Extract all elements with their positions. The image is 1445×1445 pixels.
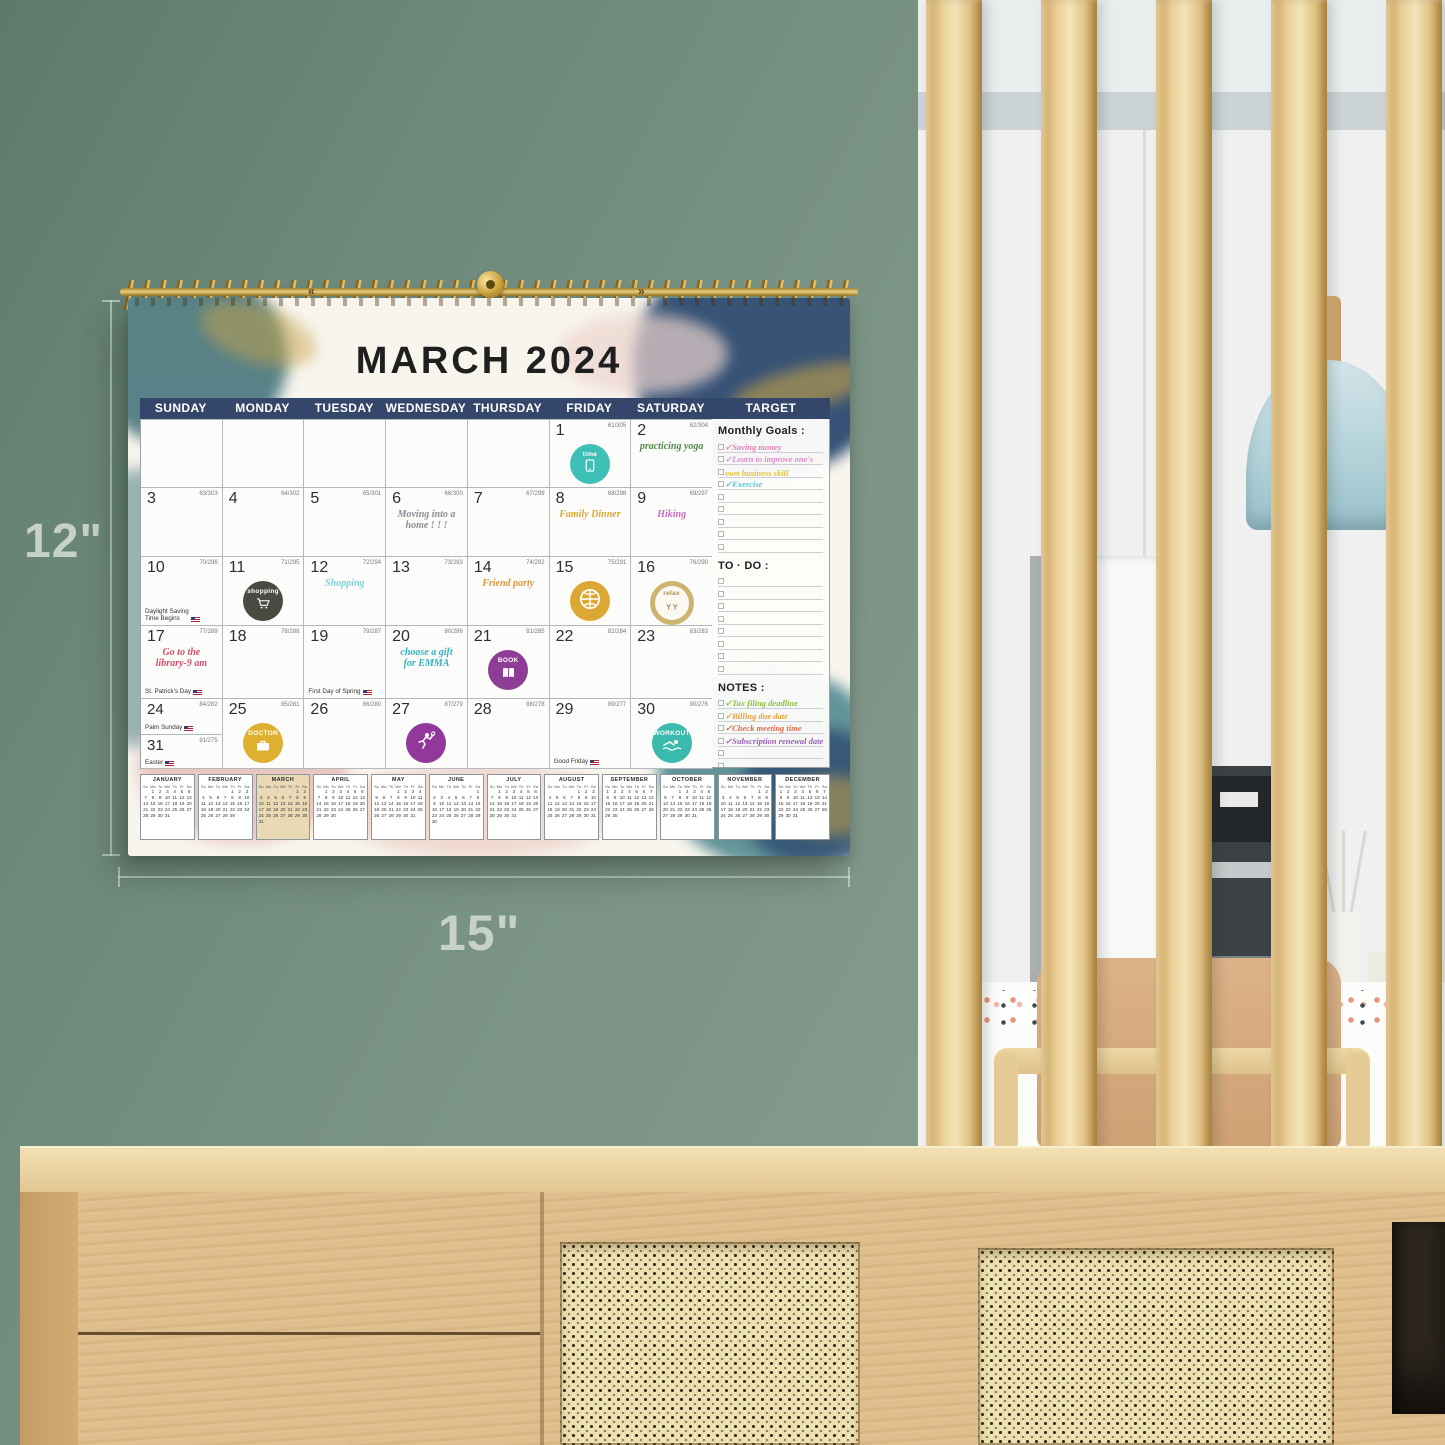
calendar-day-cell: 464/302: [223, 488, 305, 557]
calendar-day-cell: 2787/279: [386, 699, 468, 769]
mini-days-grid: 1234567891011121314151617181920212223242…: [489, 789, 540, 819]
day-number: 29: [556, 701, 574, 719]
mini-day: 26: [633, 807, 640, 813]
mini-days-grid: 1234567891011121314151617181920212223242…: [546, 789, 597, 819]
mini-day: 30: [684, 813, 691, 819]
checklist-line: own business skill: [718, 465, 823, 478]
mini-day: 25: [727, 813, 734, 819]
mini-day: 29: [294, 813, 301, 819]
us-flag-icon: [193, 690, 202, 696]
mini-days-grid: 1234567891011121314151617181920212223242…: [315, 789, 366, 819]
mini-day: 27: [359, 807, 366, 813]
calendar-day-cell: [468, 420, 550, 488]
day-number: 14: [474, 559, 492, 577]
calendar-day-cell: 2181/285BOOK: [468, 626, 550, 699]
day-of-year-code: 67/299: [526, 491, 544, 497]
checklist-line: [718, 575, 823, 588]
calendar-page: MARCH 2024 SUNDAYMONDAYTUESDAYWEDNESDAYT…: [128, 298, 850, 856]
notes-label: NOTES :: [718, 682, 823, 694]
wood-slat: [1271, 0, 1327, 1152]
swimmer-icon: [662, 738, 682, 756]
day-number: 9: [637, 490, 646, 508]
mini-month-name: APRIL: [315, 776, 366, 784]
monthly-goals-label: Monthly Goals :: [718, 425, 823, 437]
mini-day: 24: [720, 813, 727, 819]
handwritten-note: choose a gift for EMMA: [388, 647, 465, 669]
day-number: 3: [147, 490, 156, 508]
calendar-day-cell: 666/300Moving into a home ! ! !: [386, 488, 468, 557]
mini-day: 29: [496, 813, 503, 819]
sticker-label: DOCTOR: [248, 730, 278, 737]
mini-days-grid: 1234567891011121314151617181920212223242…: [662, 789, 713, 819]
phone-icon: [585, 459, 595, 477]
mini-day: 28: [388, 813, 395, 819]
mini-day: 25: [518, 807, 525, 813]
mini-month-march: MARCHSuMoTuWeThFrSa123456789101112131415…: [256, 774, 311, 840]
mini-month-july: JULYSuMoTuWeThFrSa1234567891011121314151…: [487, 774, 542, 840]
mini-day: 23: [236, 807, 243, 813]
day-of-year-code: 91/275: [199, 738, 217, 744]
mini-day: 29: [676, 813, 683, 819]
us-flag-icon: [590, 760, 599, 766]
checklist-line: ✓Billing due date: [718, 709, 823, 722]
day-number: 10: [147, 559, 165, 577]
day-number: 8: [556, 490, 565, 508]
calendar-day-cell: 969/297Hiking: [631, 488, 713, 557]
cane-panel: [560, 1242, 860, 1445]
weekday-header-cell: MONDAY: [222, 398, 304, 419]
holiday-label: Easter: [145, 760, 174, 767]
day-number: 19: [310, 628, 328, 646]
checklist-text: ✓Exercise: [725, 479, 762, 490]
day-of-year-code: 88/278: [526, 702, 544, 708]
mini-day: 29: [604, 813, 611, 819]
mini-day: 29: [756, 813, 763, 819]
sticker-book-icon: BOOK: [488, 650, 528, 690]
mini-day: 26: [207, 813, 214, 819]
mini-month-name: MARCH: [258, 776, 309, 784]
day-number: 1: [556, 422, 565, 440]
binding-mark: »: [638, 284, 645, 298]
holiday-label: First Day of Spring: [308, 689, 371, 696]
checklist-line: ✓Exercise: [718, 478, 823, 491]
day-of-year-code: 81/285: [526, 629, 544, 635]
sticker-relax-icon: relax: [650, 581, 694, 625]
day-of-year-code: 63/303: [199, 491, 217, 497]
mini-day: 30: [611, 813, 618, 819]
day-of-year-code: 74/292: [526, 560, 544, 566]
todo-label: TO · DO :: [718, 560, 823, 572]
mini-day: 24: [438, 813, 445, 819]
monthly-goals-list: ✓Saving money✓Learn to improve one'sown …: [718, 440, 823, 553]
checklist-line: [718, 600, 823, 613]
weekday-header-cell: THURSDAY: [467, 398, 549, 419]
checklist-line: ✓Saving money: [718, 440, 823, 453]
mini-day: 26: [734, 813, 741, 819]
checklist-text: ✓Billing due date: [725, 711, 788, 722]
mini-day: 29: [777, 813, 784, 819]
weekday-header: SUNDAYMONDAYTUESDAYWEDNESDAYTHURSDAYFRID…: [140, 398, 830, 419]
mini-day: 30: [402, 813, 409, 819]
holiday-text: St. Patrick's Day: [145, 689, 191, 696]
open-shelf: [1392, 1222, 1445, 1414]
mini-day: 25: [417, 807, 424, 813]
checklist-text: ✓Tax filing deadline: [725, 698, 798, 709]
mini-day: 30: [583, 813, 590, 819]
day-of-year-code: 89/277: [608, 702, 626, 708]
mini-month-april: APRILSuMoTuWeThFrSa123456789101112131415…: [313, 774, 368, 840]
day-of-year-code: 70/296: [199, 560, 217, 566]
cheers-icon: [665, 598, 678, 616]
mini-month-name: SEPTEMBER: [604, 776, 655, 784]
room-scene: 12" 15" « » MARCH 2024 SUNDAYMONDAYTUESD…: [0, 0, 1445, 1445]
cart-icon: [256, 596, 271, 614]
mini-month-name: FEBRUARY: [200, 776, 251, 784]
mini-day: 28: [467, 813, 474, 819]
day-number: 11: [229, 559, 246, 577]
mini-day: 31: [164, 813, 171, 819]
mini-day: 29: [149, 813, 156, 819]
checklist-text: own business skill: [725, 468, 788, 478]
checklist-line: [718, 612, 823, 625]
handwritten-note: Hiking: [633, 509, 710, 520]
mini-month-december: DECEMBERSuMoTuWeThFrSa123456789101112131…: [775, 774, 830, 840]
day-number: 24: [147, 701, 164, 718]
mini-day: 26: [806, 807, 813, 813]
calendar-day-cell: [386, 420, 468, 488]
mini-days-grid: 1234567891011121314151617181920212223242…: [431, 789, 482, 825]
mini-month-name: MAY: [373, 776, 424, 784]
split-day-bottom: 3191/275Easter: [141, 735, 222, 770]
mini-day: 27: [214, 813, 221, 819]
calendar-day-cell: [304, 420, 386, 488]
holiday-label: Good Friday: [554, 759, 600, 766]
day-number: 31: [147, 737, 164, 754]
calendar-day-cell: 363/303: [141, 488, 223, 557]
checklist-line: [718, 637, 823, 650]
holiday-label: St. Patrick's Day: [145, 689, 202, 696]
day-of-year-code: 90/276: [690, 702, 708, 708]
day-number: 16: [637, 559, 655, 577]
mini-day: 30: [785, 813, 792, 819]
calendar-day-cell: 2888/278: [468, 699, 550, 769]
day-number: 2: [637, 422, 646, 440]
coffee-machine-display: [1220, 792, 1258, 807]
width-dimension-line: [118, 876, 850, 878]
handwritten-note: Go to the library-9 am: [143, 647, 220, 669]
mini-day: 24: [619, 807, 626, 813]
day-number: 15: [556, 559, 574, 577]
checklist-line: [718, 747, 823, 760]
mini-day: 25: [799, 807, 806, 813]
mini-day: 28: [222, 813, 229, 819]
day-of-year-code: 85/281: [281, 702, 299, 708]
day-number: 17: [147, 628, 165, 646]
mini-month-january: JANUARYSuMoTuWeThFrSa1234567891011121314…: [140, 774, 195, 840]
mini-month-name: DECEMBER: [777, 776, 828, 784]
us-flag-icon: [191, 617, 200, 623]
sticker-badminton-icon: [406, 723, 446, 763]
mini-day: 27: [532, 807, 539, 813]
panel-groove: [540, 1192, 544, 1445]
mini-day: 29: [229, 813, 236, 819]
us-flag-icon: [165, 761, 174, 767]
sideboard: [20, 1146, 1445, 1445]
holiday-text: Good Friday: [554, 759, 589, 766]
holiday-text: Daylight Saving Time Begins: [145, 609, 189, 623]
holiday-text: Palm Sunday: [145, 725, 182, 732]
briefcase-icon: [256, 738, 270, 756]
calendar-day-cell: 1878/288: [223, 626, 305, 699]
drawer-groove: [78, 1332, 540, 1335]
sticker-time-icon: time: [570, 444, 610, 484]
mini-day: 29: [474, 813, 481, 819]
mini-month-may: MAYSuMoTuWeThFrSa12345678910111213141516…: [371, 774, 426, 840]
calendar-title: MARCH 2024: [128, 340, 850, 383]
sticker-workout-icon: WORKOUT: [652, 723, 692, 763]
calendar-day-cell: 1070/296Daylight Saving Time Begins: [141, 557, 223, 626]
checklist-line: ✓Check meeting time: [718, 722, 823, 735]
mini-days-grid: 1234567891011121314151617181920212223242…: [373, 789, 424, 819]
day-number: 7: [474, 490, 483, 508]
mini-day: 28: [142, 813, 149, 819]
mini-day: 30: [330, 813, 337, 819]
calendar-day-cell: 1979/287First Day of Spring: [304, 626, 386, 699]
mini-day: 26: [705, 807, 712, 813]
sticker-label: shopping: [247, 588, 279, 595]
mini-day: 26: [352, 807, 359, 813]
mini-calendar-strip: JANUARYSuMoTuWeThFrSa1234567891011121314…: [140, 774, 830, 840]
day-number: 13: [392, 559, 410, 577]
mini-day: 31: [258, 819, 265, 825]
day-of-year-code: 65/301: [363, 491, 381, 497]
weekday-header-cell: SATURDAY: [630, 398, 712, 419]
checklist-text: ✓Saving money: [725, 442, 781, 453]
sideboard-left-edge: [20, 1192, 78, 1445]
checklist-text: ✓Subscription renewal date: [725, 736, 823, 747]
mini-day: 30: [157, 813, 164, 819]
mini-day: 25: [171, 807, 178, 813]
binding-mark: «: [308, 284, 315, 298]
mini-day: 25: [200, 813, 207, 819]
calendar-day-cell: 2383/283: [631, 626, 713, 699]
day-of-year-code: 72/294: [363, 560, 381, 566]
mini-day: 26: [178, 807, 185, 813]
us-flag-icon: [184, 726, 193, 732]
calendar-day-cell: 1474/292Friend party: [468, 557, 550, 626]
checklist-line: [718, 625, 823, 638]
target-column: Monthly Goals : ✓Saving money✓Learn to i…: [712, 419, 830, 768]
mini-day: 30: [301, 813, 308, 819]
mini-day: 27: [662, 813, 669, 819]
day-of-year-code: 82/284: [608, 629, 626, 635]
mini-day: 25: [344, 807, 351, 813]
mini-day: 29: [575, 813, 582, 819]
mini-day: 30: [503, 813, 510, 819]
mini-days-grid: 1234567891011121314151617181920212223242…: [720, 789, 771, 819]
day-of-year-code: 80/286: [444, 629, 462, 635]
mini-day: 30: [763, 813, 770, 819]
calendar-day-cell: [223, 420, 305, 488]
holiday-text: Easter: [145, 760, 163, 767]
split-day-top: 2484/282Palm Sunday: [141, 699, 222, 735]
mini-day: 28: [287, 813, 294, 819]
mini-month-name: NOVEMBER: [720, 776, 771, 784]
day-number: 30: [637, 701, 655, 719]
mini-day: 25: [546, 813, 553, 819]
checklist-line: ✓Subscription renewal date: [718, 734, 823, 747]
day-number: 21: [474, 628, 492, 646]
handwritten-note: practicing yoga: [633, 441, 710, 452]
day-of-year-code: 76/290: [690, 560, 708, 566]
day-of-year-code: 86/280: [363, 702, 381, 708]
chair-post: [1346, 1052, 1370, 1152]
calendar-day-cell: 1575/291: [550, 557, 632, 626]
cane-panel: [978, 1248, 1334, 1445]
mini-day: 31: [409, 813, 416, 819]
height-dimension-label: 12": [24, 514, 103, 569]
mini-month-june: JUNESuMoTuWeThFrSa1234567891011121314151…: [429, 774, 484, 840]
mini-month-name: AUGUST: [546, 776, 597, 784]
calendar-day-cell: 2484/282Palm Sunday3191/275Easter: [141, 699, 223, 769]
checklist-line: [718, 515, 823, 528]
mini-month-february: FEBRUARYSuMoTuWeThFrSa123456789101112131…: [198, 774, 253, 840]
day-number: 6: [392, 490, 401, 508]
mini-day: 26: [453, 813, 460, 819]
calendar-day-cell: 2080/286choose a gift for EMMA: [386, 626, 468, 699]
mini-month-september: SEPTEMBERSuMoTuWeThFrSa12345678910111213…: [602, 774, 657, 840]
checklist-line: ✓Learn to improve one's: [718, 453, 823, 466]
checklist-line: ✓Tax filing deadline: [718, 697, 823, 710]
whisk: [1348, 830, 1367, 921]
calendar-day-cell: 2686/280: [304, 699, 386, 769]
mini-days-grid: 1234567891011121314151617181920212223242…: [604, 789, 655, 819]
day-of-year-code: 69/297: [690, 491, 708, 497]
calendar-day-cell: 565/301: [304, 488, 386, 557]
mini-day: 25: [445, 813, 452, 819]
mini-days-grid: 1234567891011121314151617181920212223242…: [258, 789, 309, 825]
mini-day: 27: [814, 807, 821, 813]
height-dimension-line: [110, 300, 112, 856]
wood-slat: [1386, 0, 1442, 1152]
hanging-grommet: [477, 271, 504, 298]
checklist-line: [718, 528, 823, 541]
mini-day: 28: [749, 813, 756, 819]
mini-month-name: JANUARY: [142, 776, 193, 784]
mini-day: 27: [460, 813, 467, 819]
calendar-day-cell: 767/299: [468, 488, 550, 557]
weekday-header-cell: FRIDAY: [548, 398, 630, 419]
checklist-line: [718, 503, 823, 516]
calendar-day-cell: 2989/277Good Friday: [550, 699, 632, 769]
day-of-year-code: 84/282: [199, 702, 217, 708]
calendar-day-cell: 2282/284: [550, 626, 632, 699]
day-number: 4: [229, 490, 238, 508]
mini-day: 27: [741, 813, 748, 819]
calendar-grid: 161/305time262/304practicing yoga363/303…: [140, 419, 713, 769]
day-number: 5: [310, 490, 319, 508]
day-of-year-code: 83/283: [690, 629, 708, 635]
mini-month-name: JULY: [489, 776, 540, 784]
day-of-year-code: 64/302: [281, 491, 299, 497]
mini-month-november: NOVEMBERSuMoTuWeThFrSa123456789101112131…: [718, 774, 773, 840]
checklist-line: [718, 650, 823, 663]
chair-post: [994, 1052, 1018, 1152]
mini-day: 27: [279, 813, 286, 819]
calendar-day-cell: 1373/293: [386, 557, 468, 626]
mini-day: 25: [626, 807, 633, 813]
basketball-icon: [579, 588, 601, 615]
mini-month-august: AUGUSTSuMoTuWeThFrSa12345678910111213141…: [544, 774, 599, 840]
mini-day: 27: [640, 807, 647, 813]
calendar-day-cell: 1171/295shopping: [223, 557, 305, 626]
us-flag-icon: [363, 690, 372, 696]
mini-day: 26: [272, 813, 279, 819]
wall-calendar: « » MARCH 2024 SUNDAYMONDAYTUESDAYWEDNES…: [128, 298, 850, 856]
wood-slat: [1041, 0, 1097, 1152]
mini-day: 27: [186, 807, 193, 813]
mini-day: 25: [265, 813, 272, 819]
mini-month-october: OCTOBERSuMoTuWeThFrSa1234567891011121314…: [660, 774, 715, 840]
day-of-year-code: 66/300: [444, 491, 462, 497]
day-number: 20: [392, 628, 410, 646]
mini-days-grid: 1234567891011121314151617181920212223242…: [142, 789, 193, 819]
day-of-year-code: 75/291: [608, 560, 626, 566]
day-number: 28: [474, 701, 492, 719]
handwritten-note: Family Dinner: [552, 509, 629, 520]
holiday-label: Palm Sunday: [145, 725, 193, 732]
width-dimension-label: 15": [438, 904, 520, 962]
handwritten-note: Friend party: [470, 578, 547, 589]
day-of-year-code: 71/295: [281, 560, 299, 566]
mini-day: 28: [315, 813, 322, 819]
todo-list: [718, 575, 823, 675]
day-number: 22: [556, 628, 574, 646]
checklist-line: [718, 662, 823, 675]
day-of-year-code: 78/288: [281, 629, 299, 635]
calendar-day-cell: 3090/276WORKOUT: [631, 699, 713, 769]
holiday-text: First Day of Spring: [308, 689, 360, 696]
mini-month-name: JUNE: [431, 776, 482, 784]
mini-day: 31: [510, 813, 517, 819]
mini-day: 28: [489, 813, 496, 819]
sticker-doctor-icon: DOCTOR: [243, 723, 283, 763]
mini-day: 29: [323, 813, 330, 819]
mini-day: 29: [395, 813, 402, 819]
sticker-label: time: [583, 451, 598, 458]
mini-day: 31: [792, 813, 799, 819]
day-of-year-code: 73/293: [444, 560, 462, 566]
mini-day: 28: [821, 807, 828, 813]
checklist-line: [718, 587, 823, 600]
whisk: [1342, 830, 1345, 922]
calendar-day-cell: 1777/289Go to the library-9 amSt. Patric…: [141, 626, 223, 699]
calendar-day-cell: 262/304practicing yoga: [631, 420, 713, 488]
checklist-line: [718, 540, 823, 553]
calendar-day-cell: 161/305time: [550, 420, 632, 488]
mini-day: 24: [243, 807, 250, 813]
mini-day: 26: [554, 813, 561, 819]
checklist-line: [718, 490, 823, 503]
book-icon: [501, 665, 516, 683]
calendar-day-cell: 868/298Family Dinner: [550, 488, 632, 557]
mini-day: 27: [380, 813, 387, 819]
day-number: 18: [229, 628, 247, 646]
mini-day: 28: [568, 813, 575, 819]
day-of-year-code: 79/287: [363, 629, 381, 635]
sticker-label: relax: [663, 590, 680, 597]
day-of-year-code: 61/305: [608, 423, 626, 429]
